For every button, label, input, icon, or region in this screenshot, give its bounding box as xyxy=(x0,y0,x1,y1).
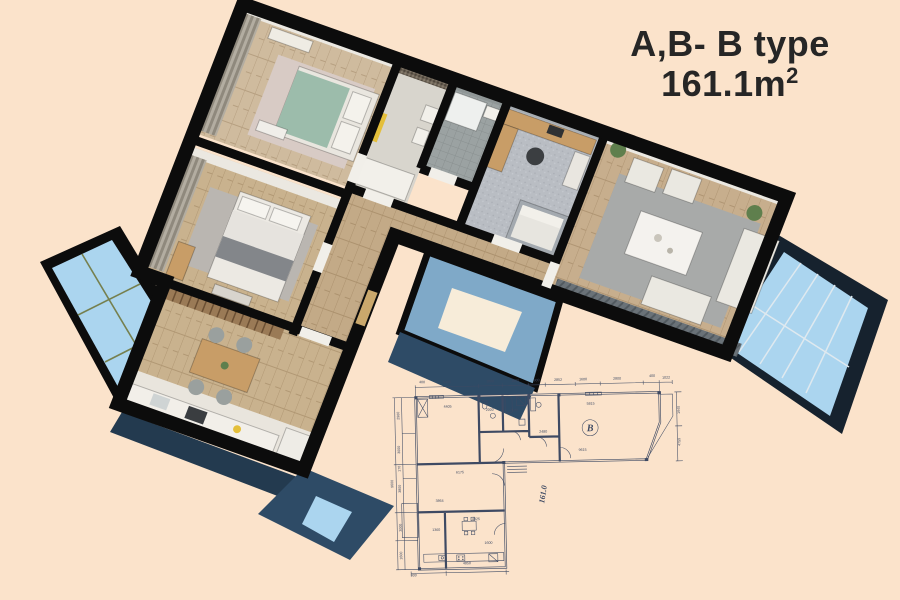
dimension-label: 1360 xyxy=(432,528,440,532)
area-exponent: 2 xyxy=(786,63,799,88)
toilet-tank xyxy=(482,400,487,403)
dimension-label: 2480 xyxy=(539,430,547,434)
dimension-label: 400 xyxy=(419,380,425,384)
dimension-label: 4759 xyxy=(677,438,681,446)
wall-piers xyxy=(414,391,664,570)
blueprint-walls xyxy=(399,391,676,571)
dimension-label: 1940 xyxy=(677,406,681,414)
dimension-label: 1600 xyxy=(579,377,587,381)
dimension-label: 7100 xyxy=(510,408,518,412)
dimension-label: 400 xyxy=(649,374,655,378)
sink-symbol xyxy=(490,413,495,418)
desk-symbol xyxy=(530,398,535,411)
dimension-label: 2800 xyxy=(613,377,621,381)
dimension-label: 2960 xyxy=(396,412,400,420)
washer-symbol xyxy=(519,419,525,425)
area-value: 161.1m xyxy=(661,63,786,104)
dimension-label: 170 xyxy=(397,466,401,472)
dimension-label: 2852 xyxy=(554,378,562,382)
unit-type-label: A,B- B type xyxy=(590,24,870,64)
dimension-label: 1600 xyxy=(399,552,403,560)
dimension-label: 4405 xyxy=(444,405,452,409)
floorplan-poster: { "title": { "type_label": "A,B- B type"… xyxy=(0,0,900,600)
dimension-label: 9600 xyxy=(390,480,394,488)
dimension-label: 4850 xyxy=(463,561,471,565)
dimension-label: 900 xyxy=(534,378,540,382)
unit-area-label: 161.1m2 xyxy=(590,64,870,104)
dimension-label: 5815 xyxy=(587,402,595,406)
dimension-label: 1800 xyxy=(511,379,519,383)
dimension-label: 5405 xyxy=(443,380,451,384)
unit-label: B xyxy=(586,423,594,434)
total-area-label: 161.0 xyxy=(537,485,549,504)
dimension-label: 1600 xyxy=(484,541,492,545)
chair-symbol xyxy=(536,402,541,407)
table-symbol xyxy=(462,521,476,530)
dimension-label: 3800 xyxy=(398,485,402,493)
dimension-label: 300 xyxy=(411,573,417,577)
dimension-label: 3864 xyxy=(436,499,444,503)
dimension-lines xyxy=(392,380,685,577)
dimension-label: 9615 xyxy=(579,448,587,452)
technical-blueprint: B 161.0 40054051000180090028521600280040… xyxy=(385,370,695,590)
title-block: A,B- B type 161.1m2 xyxy=(590,24,870,105)
dimension-label: 1022 xyxy=(662,376,670,380)
dimension-label: 3000 xyxy=(399,524,403,532)
dimension-label: 6175 xyxy=(456,470,464,474)
dimension-label: 3000 xyxy=(397,446,401,454)
outer-walls xyxy=(415,392,663,569)
dimension-label: 1000 xyxy=(486,379,494,383)
dimension-label: 4925 xyxy=(472,517,480,521)
entry-steps xyxy=(507,466,527,472)
dimension-label: 2000 xyxy=(486,408,494,412)
